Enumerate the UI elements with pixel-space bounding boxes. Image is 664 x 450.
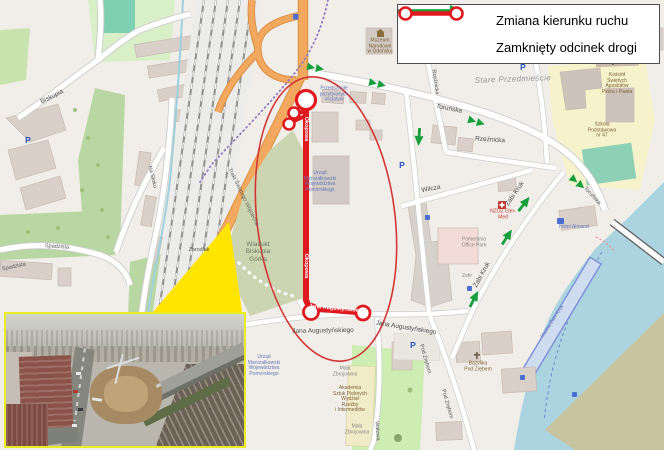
inset-aerial-photo bbox=[4, 312, 246, 448]
bus-stop-icon bbox=[572, 392, 577, 397]
inset-car bbox=[72, 424, 77, 427]
closure-endpoint-circle bbox=[304, 305, 319, 320]
legend-label-closed-road: Zamknięty odcinek drogi bbox=[496, 40, 637, 55]
hotel-icon bbox=[557, 218, 564, 224]
closure-endpoint-circle bbox=[356, 306, 370, 320]
legend-row-closed-road: Zamknięty odcinek drogi bbox=[412, 37, 659, 60]
legend-label-direction-change: Zmiana kierunku ruchu bbox=[496, 13, 628, 28]
hospital-icon bbox=[498, 201, 506, 209]
inset-construction-site bbox=[104, 376, 148, 412]
bus-stop-icon bbox=[467, 286, 472, 291]
map-screenshot: ToruńskaToruńskaRzeźnickaRzeźnickaStare … bbox=[0, 0, 664, 450]
inset-car bbox=[76, 372, 81, 375]
inset-car bbox=[78, 408, 83, 411]
closed-road-okopowa bbox=[306, 108, 309, 307]
inset-car bbox=[73, 390, 78, 393]
closure-endpoint-circle bbox=[284, 119, 295, 130]
closure-endpoint-circle bbox=[297, 91, 316, 110]
closure-endpoint-circle bbox=[289, 108, 300, 119]
slipway-icon bbox=[520, 375, 525, 380]
inset-brick-building bbox=[6, 404, 48, 446]
map-legend: Zmiana kierunku ruchu Zamknięty odcinek … bbox=[397, 4, 660, 64]
tram-stop-icon bbox=[293, 14, 299, 20]
bus-stop-icon bbox=[425, 215, 430, 220]
